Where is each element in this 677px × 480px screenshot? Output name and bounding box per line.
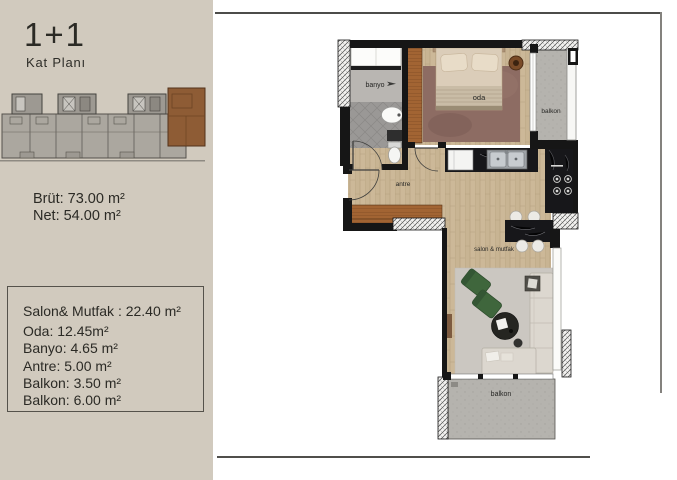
balkon-top-label: balkon: [541, 108, 561, 115]
balkon-door-post-top: [530, 44, 538, 53]
antre-label: antre: [396, 181, 411, 188]
balkon-bottom-label: balkon: [491, 391, 512, 398]
wall-balkon-top-bottom: [530, 140, 578, 149]
frame-right-line: [660, 12, 662, 393]
balkon-top-floor: [533, 48, 567, 143]
net-area: Net: 54.00 m²: [33, 208, 125, 225]
balkon-bottom-floor: [448, 379, 555, 439]
balkon-door-post-bottom: [530, 131, 538, 140]
bed-blanket: [436, 86, 502, 110]
shoe-cabinet: [351, 205, 442, 219]
bar-stool: [532, 240, 544, 252]
wall-antre-bottom-hatched: [393, 218, 445, 230]
wall-top: [343, 40, 522, 48]
radiator: [447, 314, 452, 338]
pillow-right: [472, 53, 499, 71]
frame-bottom-line: [217, 456, 590, 458]
area-banyo: Banyo: 4.65 m²: [23, 340, 203, 357]
page-subtitle: Kat Planı: [26, 55, 86, 70]
area-balkon-2: Balkon: 6.00 m²: [23, 392, 203, 409]
floor-plan: banyo oda balkon antre salon & mutfak ba…: [335, 30, 585, 445]
wall-oda-bottom-2: [438, 142, 446, 148]
area-metrics: Brüt: 73.00 m² Net: 54.00 m²: [33, 191, 125, 225]
area-antre: Antre: 5.00 m²: [23, 358, 203, 375]
toilet-icon: [388, 142, 401, 163]
area-salon-mutfak: Salon& Mutfak : 22.40 m²: [23, 303, 203, 320]
fridge: [448, 150, 473, 170]
wall-balkon-left-hatched: [438, 377, 448, 439]
wall-oda-bottom-1: [408, 142, 415, 148]
kitchen-sink: [487, 150, 527, 169]
balkon-bottom-post: [443, 372, 451, 380]
side-table: [525, 276, 540, 291]
wall-entry-side: [343, 198, 352, 227]
pillow-left: [440, 53, 467, 72]
key-plan: [0, 86, 213, 164]
washer: [387, 130, 404, 141]
banyo-closet-divider: [351, 66, 401, 70]
room-salon: [447, 268, 553, 375]
bathtub-faucet-icon: [397, 113, 400, 116]
sidebar: 1+1 Kat Planı: [0, 0, 213, 480]
area-oda: Oda: 12.45m²: [23, 323, 203, 340]
page-title: 1+1: [24, 16, 86, 54]
balkon-bottom-post: [478, 374, 483, 379]
oda-label: oda: [473, 93, 486, 102]
room-areas-box: Salon& Mutfak : 22.40 m² Oda: 12.45m² Ba…: [7, 286, 204, 412]
wall-antre-bottom: [343, 223, 397, 231]
coffee-table: [492, 313, 519, 340]
frame-top-line: [215, 12, 662, 14]
wall-salon-left: [442, 228, 447, 377]
balkon-bottom-window-wall: [448, 374, 553, 379]
brut-area: Brüt: 73.00 m²: [33, 191, 125, 208]
salon-mutfak-label: salon & mutfak: [474, 247, 515, 253]
wall-banyo-divider: [402, 44, 408, 166]
bar-stool: [516, 240, 528, 252]
wall-salon-right-hatched: [562, 330, 571, 377]
balkon-bottom-post: [513, 374, 518, 379]
wall-left: [340, 107, 350, 166]
plant-pot: [509, 56, 523, 70]
page: 1+1 Kat Planı: [0, 0, 677, 480]
wall-banyo-bottom-2: [382, 164, 408, 170]
key-plan-highlighted-unit: [168, 88, 205, 146]
wall-kitchen-right-edge: [573, 143, 578, 213]
bed: [433, 44, 505, 110]
banyo-label: banyo: [365, 82, 384, 89]
balkon-vent: [451, 382, 458, 387]
wall-kitchen-hatched: [553, 213, 578, 229]
wall-banyo-bottom-1: [348, 164, 353, 170]
area-balkon-1: Balkon: 3.50 m²: [23, 375, 203, 392]
wall-salon-right-top: [550, 229, 560, 248]
wall-left-hatched: [338, 40, 350, 107]
pouf: [514, 339, 523, 348]
